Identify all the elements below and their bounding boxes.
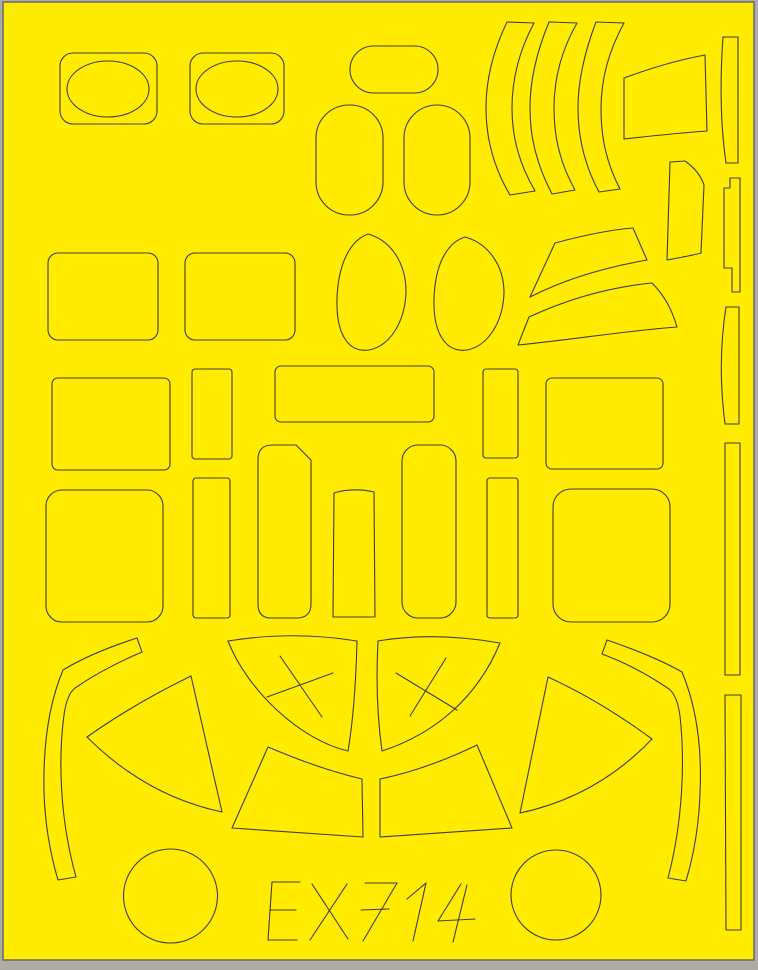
sheet-background: [3, 2, 754, 960]
mask-sheet-svg: [0, 0, 758, 970]
scanned-mask-sheet: EX714: [0, 0, 758, 970]
